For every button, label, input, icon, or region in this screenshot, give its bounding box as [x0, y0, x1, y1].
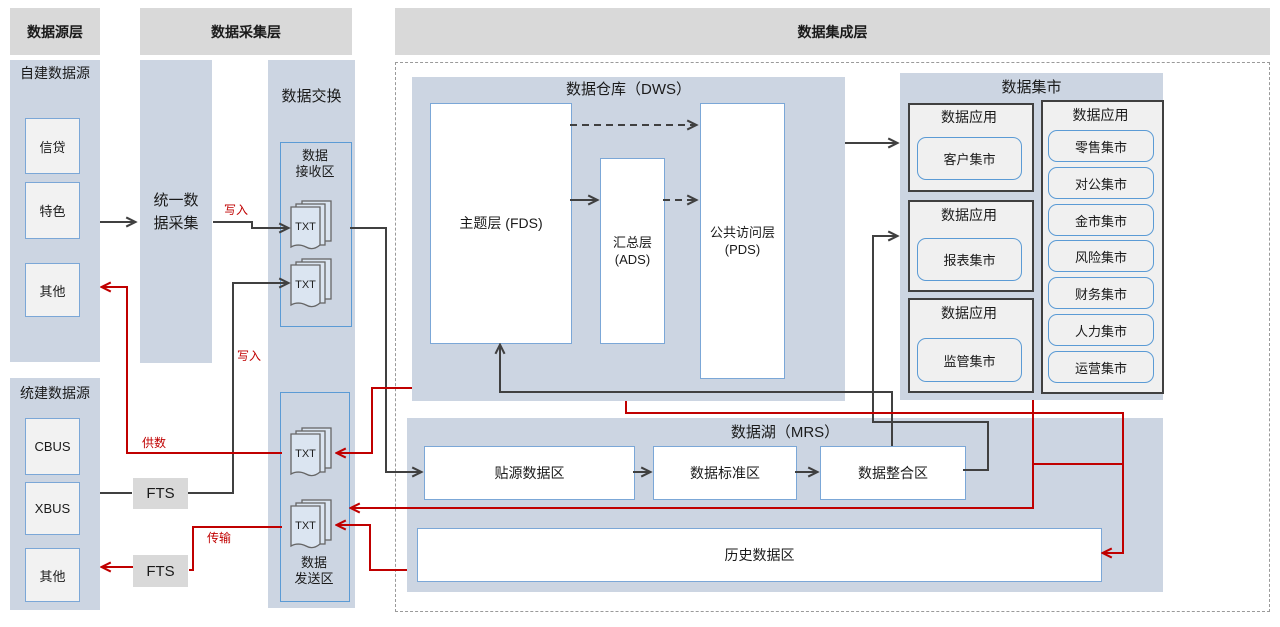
send-zone-label-line1: 数据 — [301, 555, 327, 571]
app-title-regulatory: 数据应用 — [908, 304, 1030, 322]
source-box-credit: 信贷 — [25, 118, 80, 174]
collector-label-line1: 统一数 — [153, 189, 198, 212]
app-title-customer: 数据应用 — [908, 108, 1030, 126]
mart-hr: 人力集市 — [1048, 314, 1154, 346]
app-title-list: 数据应用 — [1041, 106, 1160, 124]
edge-label-write-bottom: 写入 — [237, 347, 261, 364]
mrs-history-zone: 历史数据区 — [417, 528, 1102, 582]
mart-operations: 运营集市 — [1048, 351, 1154, 383]
txt-files-icon-recv-2: TXT — [289, 258, 335, 312]
ads-label-line1: 汇总层 — [613, 234, 652, 251]
txt-label: TXT — [295, 221, 316, 233]
source-box-other-self: 其他 — [25, 263, 80, 317]
panel-unified-data-collection: 统一数 据采集 — [140, 60, 212, 363]
fts-box-upper: FTS — [133, 478, 188, 509]
data-exchange-title: 数据交换 — [268, 87, 355, 107]
pds-label-line2: (PDS) — [725, 241, 760, 258]
source-box-other-unified: 其他 — [25, 548, 80, 602]
architecture-diagram: 数据源层 数据采集层 数据集成层 自建数据源 信贷 特色 其他 统建数据源 CB… — [0, 0, 1280, 627]
txt-files-icon-send-1: TXT — [289, 427, 335, 481]
mrs-zone-source: 贴源数据区 — [424, 446, 635, 500]
mart-regulatory: 监管集市 — [917, 338, 1022, 382]
txt-label: TXT — [295, 448, 316, 460]
dws-box-pds: 公共访问层 (PDS) — [700, 103, 785, 379]
txt-label: TXT — [295, 279, 316, 291]
mart-customer: 客户集市 — [917, 137, 1022, 180]
mart-finance: 财务集市 — [1048, 277, 1154, 309]
app-title-report: 数据应用 — [908, 206, 1030, 224]
mart-report: 报表集市 — [917, 238, 1022, 281]
header-data-integration-layer: 数据集成层 — [395, 8, 1270, 55]
edge-label-transfer: 传输 — [207, 529, 231, 546]
ads-label-line2: (ADS) — [615, 251, 650, 268]
mart-financial-market: 金市集市 — [1048, 204, 1154, 236]
collector-label-line2: 据采集 — [153, 212, 198, 235]
header-data-collection-layer: 数据采集层 — [140, 8, 352, 55]
txt-label: TXT — [295, 520, 316, 532]
txt-files-icon-recv-1: TXT — [289, 200, 335, 254]
mart-retail: 零售集市 — [1048, 130, 1154, 162]
mart-corporate: 对公集市 — [1048, 167, 1154, 199]
self-built-sources-title: 自建数据源 — [10, 63, 100, 83]
dws-box-ads: 汇总层 (ADS) — [600, 158, 665, 344]
data-marts-title: 数据集市 — [900, 78, 1163, 98]
mrs-zone-standard: 数据标准区 — [653, 446, 797, 500]
recv-zone-label-line2: 接收区 — [295, 164, 334, 180]
edge-label-write-top: 写入 — [224, 201, 248, 218]
dws-box-fds: 主题层 (FDS) — [430, 103, 572, 344]
fts-box-lower: FTS — [133, 555, 188, 587]
source-box-cbus: CBUS — [25, 418, 80, 475]
edge-label-supply: 供数 — [142, 434, 166, 451]
txt-files-icon-send-2: TXT — [289, 499, 335, 553]
source-box-special: 特色 — [25, 182, 80, 239]
mart-risk: 风险集市 — [1048, 240, 1154, 272]
mrs-zone-integration: 数据整合区 — [820, 446, 966, 500]
send-zone-label-line2: 发送区 — [294, 571, 333, 587]
recv-zone-label-line1: 数据 — [302, 148, 328, 164]
mrs-title: 数据湖（MRS） — [407, 423, 1163, 443]
dws-title: 数据仓库（DWS） — [412, 80, 845, 100]
send-zone-label: 数据 发送区 — [280, 554, 348, 588]
source-box-xbus: XBUS — [25, 482, 80, 535]
recv-zone-label: 数据 接收区 — [280, 147, 350, 181]
header-data-source-layer: 数据源层 — [10, 8, 100, 55]
pds-label-line1: 公共访问层 — [710, 224, 775, 241]
unified-built-sources-title: 统建数据源 — [10, 383, 100, 403]
